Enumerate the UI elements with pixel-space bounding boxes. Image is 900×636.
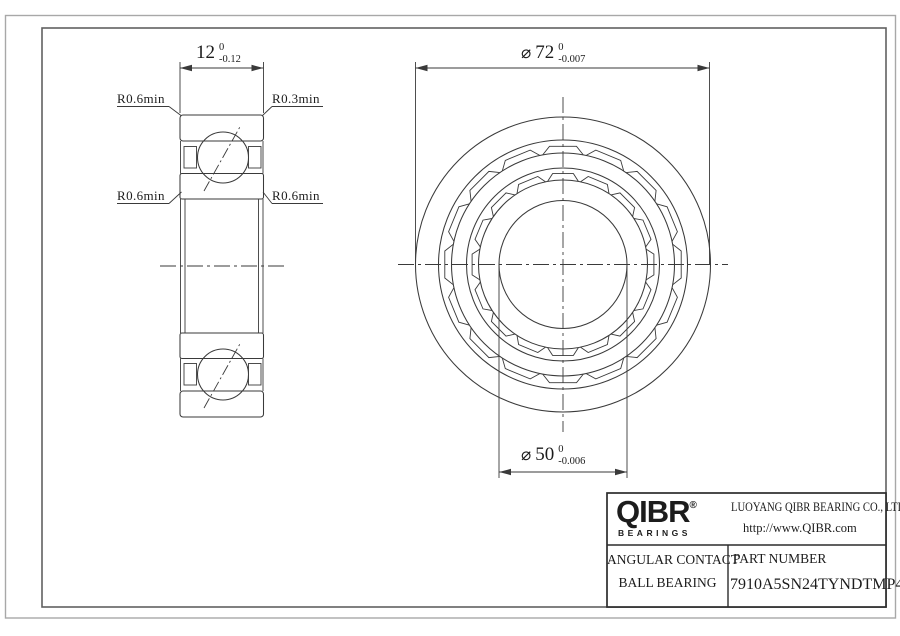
callout-inner-left: R0.6min [117, 188, 165, 204]
callout-outer-left: R0.6min [117, 91, 165, 107]
front-view-centerlines [398, 97, 728, 432]
part-number-value: 7910A5SN24TYNDTMP4 [730, 576, 882, 594]
diameter-symbol: ⌀ [521, 43, 531, 63]
dimension-width-value: 12 [196, 43, 215, 62]
dimension-od-tolerance: 0 -0.007 [558, 42, 585, 66]
diameter-symbol: ⌀ [521, 445, 531, 465]
section-view [160, 115, 284, 417]
brand-subtitle: BEARINGS [618, 529, 697, 538]
dimension-width-lines [180, 62, 264, 113]
dimension-od: ⌀ 72 0 -0.007 [521, 43, 585, 67]
bearing-drawing-sheet: R0.6min R0.3min R0.6min R0.6min 12 0 -0.… [0, 0, 900, 636]
cage-lower-left [184, 364, 197, 386]
cage-upper-left [184, 147, 197, 169]
product-name-line1: ANGULAR CONTACT [607, 552, 728, 568]
contact-angle-line-lower [204, 342, 241, 408]
company-website: http://www.QIBR.com [743, 521, 857, 536]
product-name-line2: BALL BEARING [607, 575, 728, 591]
dimension-bore-tolerance: 0 -0.006 [558, 444, 585, 468]
dimension-width: 12 0 -0.12 [196, 43, 241, 67]
dimension-bore: ⌀ 50 0 -0.006 [521, 445, 585, 469]
dimension-width-tolerance: 0 -0.12 [219, 42, 241, 66]
outer-ring-lower-section [180, 391, 264, 417]
dimension-bore-value: 50 [535, 445, 554, 464]
dimension-od-lines [416, 62, 710, 265]
brand-logo: QIBR® BEARINGS [616, 496, 697, 538]
inner-ring-lower-section [180, 333, 264, 359]
registered-mark: ® [690, 500, 697, 511]
brand-name: QIBR [616, 494, 690, 529]
dimension-od-value: 72 [535, 43, 554, 62]
inner-ring-upper-section [180, 174, 264, 200]
callout-inner-right: R0.6min [272, 188, 320, 204]
company-name: LUOYANG QIBR BEARING CO., LTD [731, 500, 900, 515]
cage-upper-right [249, 147, 262, 169]
contact-angle-line-upper [204, 125, 241, 191]
callout-outer-right: R0.3min [272, 91, 320, 107]
part-number-label: PART NUMBER [733, 551, 826, 567]
cage-lower-right [249, 364, 262, 386]
outer-ring-upper-section [180, 115, 264, 141]
